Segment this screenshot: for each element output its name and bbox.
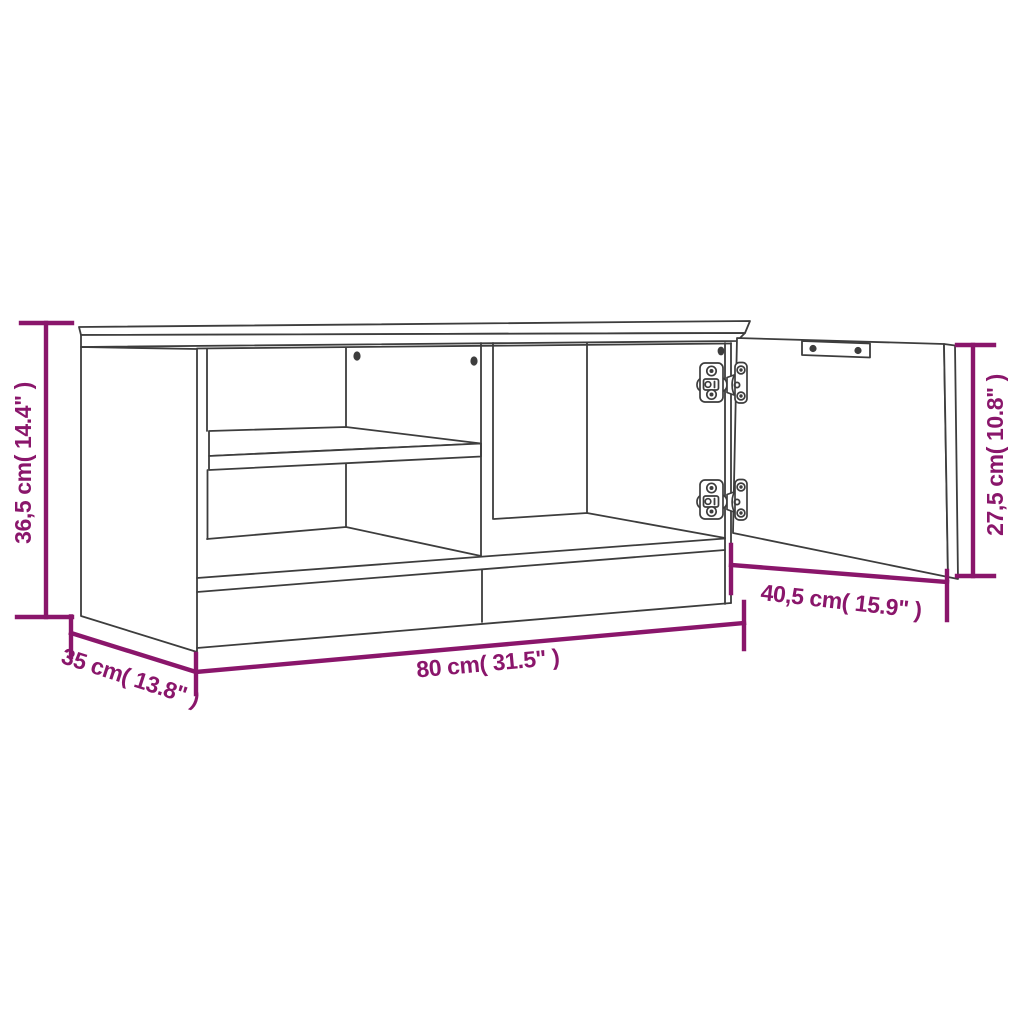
diagram-canvas: 36,5 cm( 14.4" ) 35 cm( 13.8" ) 80 cm( 3… bbox=[0, 0, 1024, 1024]
screw-icon bbox=[470, 356, 477, 365]
center-divider bbox=[481, 343, 493, 556]
dimension-height: 36,5 cm( 14.4" ) bbox=[10, 323, 72, 617]
middle-shelf bbox=[209, 427, 481, 470]
bottom-panel bbox=[197, 513, 731, 648]
dimension-width: 80 cm( 31.5" ) bbox=[196, 602, 744, 683]
hinge-top bbox=[697, 363, 747, 404]
screw-icon bbox=[809, 345, 816, 352]
door-width-dimension-label: 40,5 cm( 15.9" ) bbox=[759, 579, 923, 623]
hinge-bottom bbox=[697, 480, 747, 521]
screw-icon bbox=[854, 347, 861, 354]
screw-icon bbox=[353, 351, 360, 360]
top-panel bbox=[79, 321, 750, 349]
door-height-dimension-label: 27,5 cm( 10.8" ) bbox=[982, 374, 1008, 536]
door-bracket bbox=[802, 341, 870, 358]
cabinet-dimension-diagram: 36,5 cm( 14.4" ) 35 cm( 13.8" ) 80 cm( 3… bbox=[0, 0, 1024, 1024]
dimension-door-height: 27,5 cm( 10.8" ) bbox=[957, 345, 1008, 576]
open-door bbox=[733, 338, 958, 579]
screw-icon bbox=[718, 347, 725, 356]
left-side-panel bbox=[81, 347, 197, 652]
height-dimension-label: 36,5 cm( 14.4" ) bbox=[10, 382, 36, 544]
